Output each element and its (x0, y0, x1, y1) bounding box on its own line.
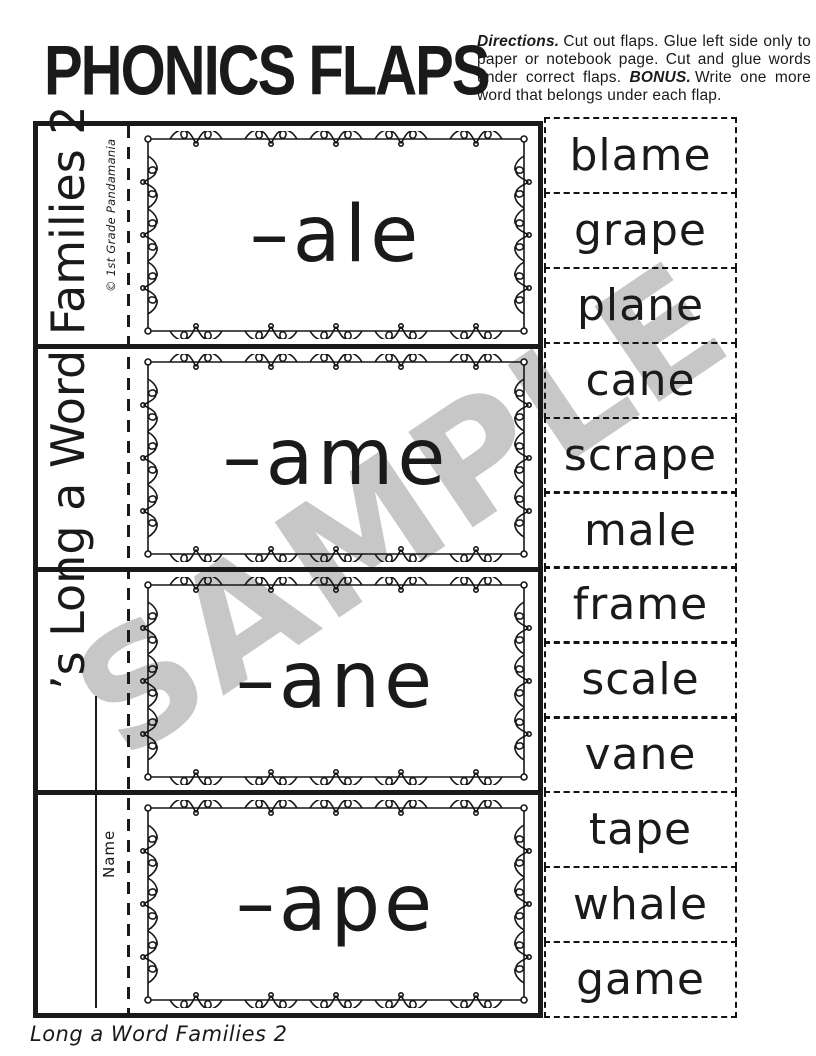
flap-card-ale: –ale (140, 131, 532, 339)
word-card: tape (544, 791, 737, 868)
flap-label: –ale (250, 190, 422, 280)
flap-card-ane: –ane (140, 577, 532, 785)
word-card: vane (544, 716, 737, 793)
word-label: scrape (564, 430, 717, 481)
page-title: PHONICS FLAPS (44, 30, 489, 112)
flap-card-ame: –ame (140, 354, 532, 562)
word-label: plane (577, 280, 704, 331)
word-column: blame grape plane cane scrape male frame… (544, 117, 737, 1018)
word-label: tape (589, 804, 692, 855)
word-card: scale (544, 641, 737, 718)
flap-card-ape: –ape (140, 800, 532, 1008)
word-label: vane (585, 729, 697, 780)
word-card: grape (544, 192, 737, 269)
word-card: whale (544, 866, 737, 943)
word-label: blame (569, 130, 711, 181)
name-label: Name (100, 830, 118, 878)
word-label: game (576, 954, 705, 1005)
bonus-label: BONUS. (630, 69, 691, 86)
name-line: Name (40, 696, 97, 1008)
word-card: plane (544, 267, 737, 344)
copyright-credit: © 1st Grade Pandamania (104, 139, 118, 292)
word-card: game (544, 941, 737, 1018)
flap-label: –ane (236, 636, 436, 726)
word-label: cane (585, 355, 695, 406)
word-label: frame (573, 579, 708, 630)
directions-label: Directions. (477, 33, 559, 50)
directions-text: Directions.Cut out flaps. Glue left side… (477, 33, 811, 106)
word-card: male (544, 491, 737, 568)
word-card: cane (544, 342, 737, 419)
footer-title: Long a Word Families 2 (30, 1022, 287, 1046)
word-label: scale (581, 654, 699, 705)
flap-label: –ape (236, 859, 436, 949)
word-card: scrape (544, 417, 737, 494)
word-card: blame (544, 117, 737, 194)
spine-title: ’s Long a Word Families 2 (40, 105, 95, 690)
word-card: frame (544, 566, 737, 643)
word-label: whale (573, 879, 708, 930)
word-label: male (584, 505, 697, 556)
flap-label: –ame (223, 413, 450, 503)
word-label: grape (574, 205, 707, 256)
